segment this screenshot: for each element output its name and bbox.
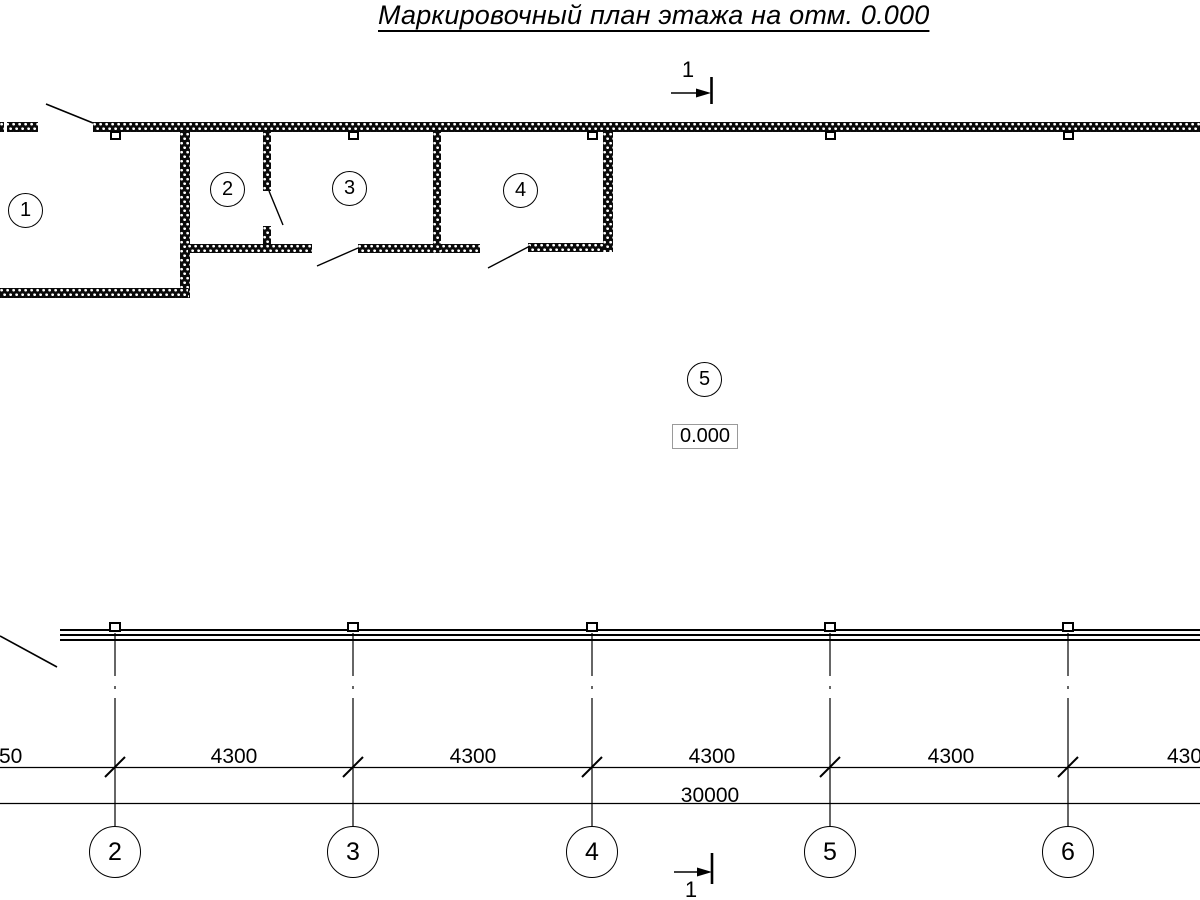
column-marker-beam-axis2 [109, 622, 121, 632]
section-arrowhead-top [696, 89, 711, 98]
dim-segment-right-cut: 4300 [1167, 745, 1200, 769]
column-marker-plan-axis4 [587, 131, 598, 140]
door-swing-room2 [269, 191, 283, 225]
axis-circle-4: 4 [566, 826, 618, 878]
column-marker-plan-axis2 [110, 131, 121, 140]
room-mark-circle-3: 3 [332, 171, 367, 206]
dim-total: 30000 [660, 784, 760, 808]
column-marker-beam-axis3 [347, 622, 359, 632]
column-marker-beam-axis4 [586, 622, 598, 632]
drawing-sheet: Маркировочный план этажа на отм. 0.000 1… [0, 0, 1200, 900]
column-marker-plan-axis6 [1063, 131, 1074, 140]
room-mark-circle-5: 5 [687, 362, 722, 397]
room-mark-circle-2: 2 [210, 172, 245, 207]
column-marker-plan-axis5 [825, 131, 836, 140]
grid-axis-lines [115, 633, 1068, 826]
room-mark-label: 2 [222, 178, 233, 201]
door-swing-room4 [488, 246, 530, 268]
section-arrowhead-bottom [697, 868, 712, 877]
column-marker-plan-axis3 [348, 131, 359, 140]
room-mark-label: 3 [344, 177, 355, 200]
axis-label: 6 [1061, 838, 1075, 867]
axis-circle-3: 3 [327, 826, 379, 878]
axis-circle-5: 5 [804, 826, 856, 878]
axis-label: 4 [585, 838, 599, 867]
elevation-value: 0.000 [680, 425, 730, 448]
column-marker-beam-axis5 [824, 622, 836, 632]
door-swing-room1 [46, 104, 93, 123]
section-mark-bottom-label: 1 [678, 877, 704, 900]
door-swing-room3 [317, 248, 358, 266]
dim-segment-left-cut: 50 [0, 745, 22, 769]
elevation-mark-box: 0.000 [672, 424, 738, 449]
column-marker-beam-axis6 [1062, 622, 1074, 632]
dim-segment-3-4: 4300 [433, 745, 513, 769]
linework-overlay [0, 0, 1200, 900]
room-mark-label: 1 [20, 199, 31, 222]
beam-leader-line [0, 636, 57, 667]
dim-segment-5-6: 4300 [911, 745, 991, 769]
room-mark-label: 5 [699, 368, 710, 391]
axis-label: 2 [108, 838, 122, 867]
room-mark-circle-4: 4 [503, 173, 538, 208]
room-mark-circle-1: 1 [8, 193, 43, 228]
dim-segment-2-3: 4300 [194, 745, 274, 769]
axis-label: 5 [823, 838, 837, 867]
section-mark-top-label: 1 [675, 57, 701, 83]
axis-circle-2: 2 [89, 826, 141, 878]
dim-segment-4-5: 4300 [672, 745, 752, 769]
axis-circle-6: 6 [1042, 826, 1094, 878]
axis-label: 3 [346, 838, 360, 867]
room-mark-label: 4 [515, 179, 526, 202]
